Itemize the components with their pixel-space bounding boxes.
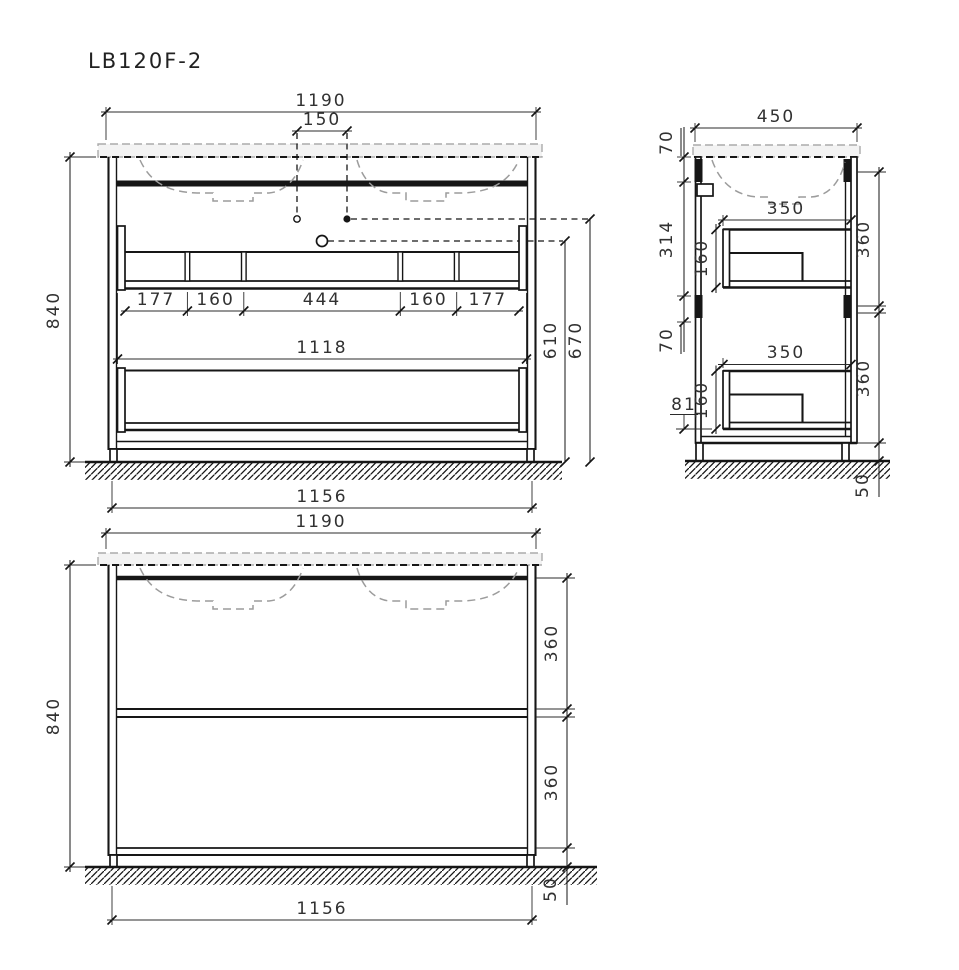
dim-section-5: 177: [469, 290, 507, 310]
dim-upper-drawer-front-height: 360: [542, 624, 562, 662]
technical-drawing-page: LB120F-2 1190 150: [0, 0, 959, 970]
side-countertop: [693, 145, 860, 157]
faucet-hole-right: [343, 215, 350, 222]
dim-overall-height: 840: [44, 291, 64, 329]
drawing-title: LB120F-2: [88, 49, 203, 73]
dim-depth: 450: [757, 107, 795, 127]
dim-drawer-depth-lower: 350: [767, 343, 805, 363]
dim-side-leg-height: 50: [853, 472, 873, 498]
dim-top-bracket-height: 70: [657, 129, 677, 155]
dim-drawer-front-height-upper: 360: [854, 220, 874, 258]
dim-closed-leg-height: 50: [541, 876, 561, 902]
countertop: [98, 144, 542, 157]
closed-right-leg: [527, 855, 534, 867]
closed-floor-hatch: [85, 868, 597, 885]
dim-drain-height: 670: [566, 321, 586, 359]
side-back-leg: [696, 443, 703, 461]
closed-left-leg: [110, 855, 117, 867]
dim-drawer-inner-height-upper: 160: [692, 239, 712, 277]
dim-section-3: 444: [303, 290, 341, 310]
dim-lower-drawer-front-height: 360: [542, 763, 562, 801]
dim-section-1: 177: [137, 290, 175, 310]
dim-closed-overall-width: 1190: [295, 512, 346, 532]
dim-section-4: 160: [409, 290, 447, 310]
left-leg: [110, 449, 117, 462]
dim-overall-width: 1190: [295, 91, 346, 111]
floor-hatch: [85, 463, 562, 480]
side-front-leg: [842, 443, 849, 461]
dim-siphon-height: 610: [541, 321, 561, 359]
dim-inner-width: 1118: [296, 338, 347, 358]
dim-closed-base-width: 1156: [296, 899, 347, 919]
front-panel: [851, 157, 857, 443]
hinge-bottom: [844, 295, 852, 318]
dim-drawer-depth-upper: 350: [767, 199, 805, 219]
dim-closed-overall-height: 840: [44, 697, 64, 735]
dim-base-width: 1156: [296, 487, 347, 507]
dim-lower-bracket-height: 70: [657, 327, 677, 353]
closed-countertop: [98, 553, 542, 565]
vanity-cabinet-drawing: LB120F-2 1190 150: [0, 0, 959, 970]
right-leg: [527, 449, 534, 462]
dim-faucet-spacing: 150: [303, 110, 341, 130]
mounting-bracket: [697, 184, 713, 196]
wall-bracket-top: [695, 159, 703, 182]
dim-bottom-clearance: 81: [671, 395, 697, 415]
dim-drawer-front-height-lower: 360: [854, 359, 874, 397]
dim-section-2: 160: [196, 290, 234, 310]
wall-bracket-bottom: [695, 295, 703, 318]
dim-bracket-spacing: 314: [657, 220, 677, 258]
